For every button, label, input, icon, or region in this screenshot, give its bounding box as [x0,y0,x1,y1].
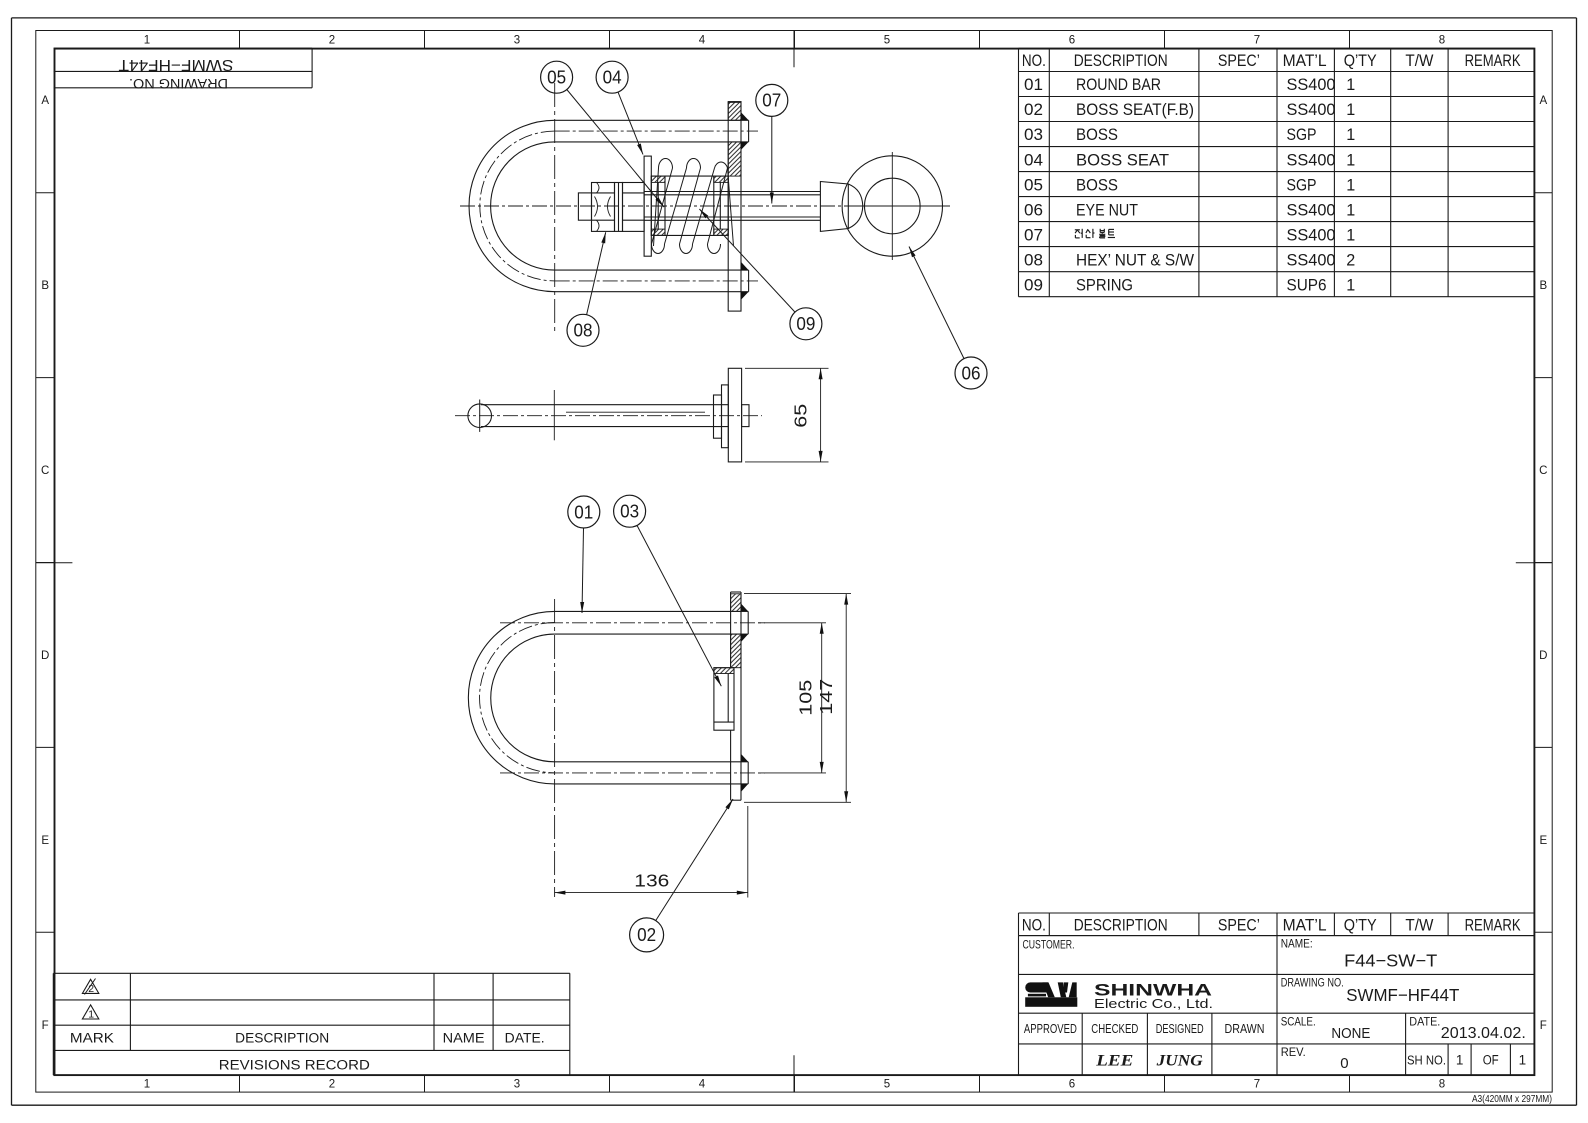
svg-text:3: 3 [514,35,520,47]
svg-text:DESIGNED: DESIGNED [1156,1022,1204,1036]
svg-text:09: 09 [1024,275,1043,294]
svg-text:BOSS: BOSS [1076,175,1118,194]
svg-text:Q’TY: Q’TY [1344,51,1377,70]
svg-text:4: 4 [699,1079,706,1091]
svg-text:6: 6 [1069,35,1075,47]
svg-text:LEE: LEE [1095,1053,1133,1070]
svg-text:1: 1 [144,1079,150,1091]
svg-text:06: 06 [962,363,981,383]
svg-text:06: 06 [1024,200,1043,219]
svg-text:B: B [1539,280,1547,292]
svg-text:CHECKED: CHECKED [1091,1022,1138,1036]
svg-text:1: 1 [1456,1053,1464,1068]
svg-text:F: F [42,1020,49,1032]
svg-text:6: 6 [1069,1079,1075,1091]
svg-text:SS400: SS400 [1287,250,1336,269]
svg-text:SS400: SS400 [1287,150,1336,169]
svg-text:2013.04.02.: 2013.04.02. [1441,1025,1526,1042]
svg-text:0: 0 [1340,1055,1348,1072]
svg-text:DATE.: DATE. [1409,1017,1440,1029]
svg-text:1: 1 [1346,225,1355,244]
svg-text:T/W: T/W [1405,51,1433,70]
svg-text:1: 1 [1346,150,1355,169]
svg-text:A3(420MM x 297MM): A3(420MM x 297MM) [1472,1094,1552,1105]
svg-text:BOSS SEAT(F.B): BOSS SEAT(F.B) [1076,100,1194,119]
svg-text:SWMF−HF44T: SWMF−HF44T [118,56,234,73]
svg-text:1: 1 [1346,125,1355,144]
svg-text:MAT’L: MAT’L [1283,916,1327,935]
svg-text:D: D [41,650,49,662]
svg-text:REMARK: REMARK [1465,51,1522,70]
svg-text:04: 04 [603,68,622,88]
svg-text:136: 136 [634,871,669,891]
svg-text:DRAWN: DRAWN [1225,1022,1265,1036]
svg-text:1: 1 [144,35,150,47]
svg-text:JUNG: JUNG [1156,1053,1204,1070]
svg-text:SS400: SS400 [1287,225,1336,244]
svg-text:MAT’L: MAT’L [1283,51,1327,70]
svg-text:SS400: SS400 [1287,100,1336,119]
svg-text:04: 04 [1024,150,1043,169]
svg-text:1: 1 [1519,1053,1527,1068]
svg-text:DRAWING NO.: DRAWING NO. [129,76,228,91]
svg-text:SPRING: SPRING [1076,275,1133,294]
svg-text:DRAWING NO.: DRAWING NO. [1281,978,1344,990]
svg-text:4: 4 [699,35,706,47]
svg-text:MARK: MARK [70,1031,114,1046]
svg-text:F: F [1540,1020,1547,1032]
svg-text:105: 105 [796,680,816,716]
svg-text:SGP: SGP [1287,175,1317,194]
svg-text:1: 1 [1346,175,1355,194]
svg-text:C: C [41,465,49,477]
svg-text:02: 02 [1024,100,1043,119]
svg-text:DESCRIPTION: DESCRIPTION [1074,51,1168,70]
svg-text:05: 05 [547,68,566,88]
svg-text:7: 7 [1254,1079,1260,1091]
svg-text:1: 1 [88,1008,94,1020]
svg-text:BOSS SEAT: BOSS SEAT [1076,150,1169,169]
svg-text:E: E [1539,835,1547,847]
svg-text:NAME: NAME [443,1031,485,1046]
svg-text:03: 03 [1024,125,1043,144]
svg-text:SWMF−HF44T: SWMF−HF44T [1346,985,1459,1005]
svg-text:B: B [41,280,49,292]
svg-text:SPEC’: SPEC’ [1218,916,1260,935]
svg-text:Electric Co., Ltd.: Electric Co., Ltd. [1094,996,1213,1011]
svg-text:C: C [1539,465,1547,477]
svg-text:65: 65 [791,404,811,428]
svg-text:01: 01 [1024,75,1043,94]
svg-text:EYE NUT: EYE NUT [1076,200,1138,219]
svg-text:T/W: T/W [1405,916,1433,935]
svg-text:1: 1 [1346,75,1355,94]
svg-text:SUP6: SUP6 [1287,275,1327,294]
svg-text:OF: OF [1483,1053,1499,1068]
svg-text:08: 08 [574,321,593,341]
svg-text:08: 08 [1024,250,1043,269]
svg-text:REMARK: REMARK [1465,916,1522,935]
svg-text:BOSS: BOSS [1076,125,1118,144]
svg-text:3: 3 [514,1079,520,1091]
svg-text:SS400: SS400 [1287,75,1336,94]
svg-text:REVISIONS RECORD: REVISIONS RECORD [219,1057,370,1072]
svg-text:CUSTOMER.: CUSTOMER. [1023,940,1075,952]
svg-text:7: 7 [1254,35,1260,47]
svg-text:NO.: NO. [1022,51,1046,70]
svg-text:HEX’ NUT & S/W: HEX’ NUT & S/W [1076,250,1194,269]
svg-text:DATE.: DATE. [505,1031,545,1046]
svg-text:05: 05 [1024,175,1043,194]
svg-text:2: 2 [329,35,335,47]
svg-text:2: 2 [1346,250,1355,269]
svg-text:8: 8 [1439,1079,1445,1091]
svg-text:SCALE.: SCALE. [1281,1017,1316,1029]
svg-text:D: D [1539,650,1547,662]
svg-text:DESCRIPTION: DESCRIPTION [1074,916,1168,935]
svg-text:147: 147 [816,679,836,715]
svg-text:REV.: REV. [1281,1047,1306,1059]
svg-text:ROUND BAR: ROUND BAR [1076,75,1161,94]
svg-text:SGP: SGP [1287,125,1317,144]
svg-text:5: 5 [884,1079,890,1091]
svg-text:01: 01 [574,502,593,522]
svg-text:09: 09 [796,314,815,334]
svg-text:8: 8 [1439,35,1445,47]
svg-text:E: E [41,835,49,847]
svg-text:APPROVED: APPROVED [1024,1022,1077,1036]
svg-text:02: 02 [637,925,656,945]
svg-text:A: A [1539,95,1547,107]
svg-text:Q’TY: Q’TY [1344,916,1377,935]
svg-text:07: 07 [1024,225,1043,244]
svg-text:2: 2 [329,1079,335,1091]
svg-text:07: 07 [762,91,781,111]
svg-text:1: 1 [1346,200,1355,219]
svg-text:DESCRIPTION: DESCRIPTION [235,1031,329,1046]
svg-text:A: A [41,95,49,107]
svg-text:SS400: SS400 [1287,200,1336,219]
svg-text:SH NO.: SH NO. [1407,1054,1446,1068]
svg-text:NO.: NO. [1022,916,1046,935]
svg-text:5: 5 [884,35,890,47]
svg-text:1: 1 [1346,100,1355,119]
svg-text:NAME:: NAME: [1281,939,1313,951]
svg-text:F44−SW−T: F44−SW−T [1344,951,1437,971]
svg-text:NONE: NONE [1331,1025,1370,1042]
svg-text:03: 03 [620,502,639,522]
svg-text:SPEC’: SPEC’ [1218,51,1260,70]
svg-text:1: 1 [1346,275,1355,294]
